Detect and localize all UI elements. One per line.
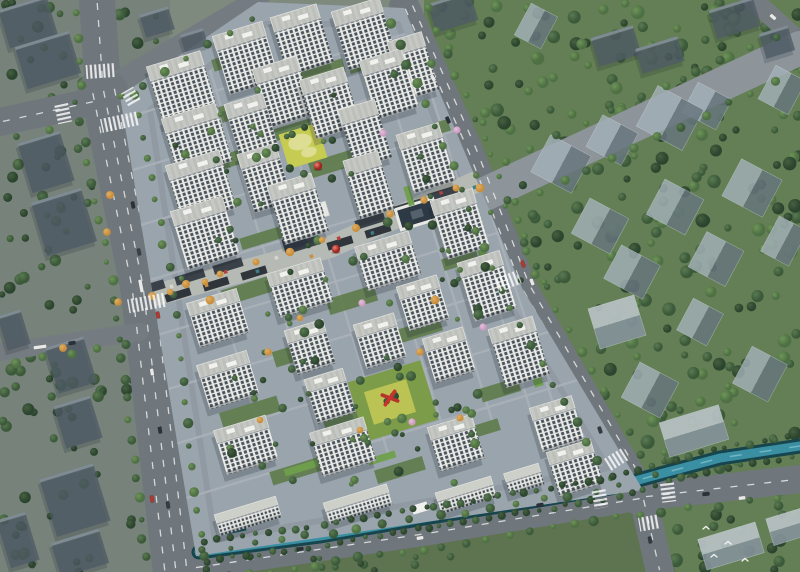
tree: [486, 504, 495, 513]
tree: [108, 275, 118, 285]
tree: [471, 499, 476, 504]
tree: [203, 40, 212, 49]
tree: [771, 292, 780, 301]
tree: [278, 404, 287, 413]
tree: [106, 191, 114, 199]
tree: [323, 277, 329, 283]
tree: [440, 277, 445, 282]
tree: [483, 493, 491, 501]
tree: [684, 503, 692, 511]
tree: [653, 342, 662, 351]
tree: [422, 175, 430, 183]
tree: [747, 302, 757, 312]
tree: [132, 37, 144, 49]
tree: [186, 443, 192, 449]
tree: [433, 27, 441, 35]
tree: [227, 534, 234, 541]
tree: [502, 158, 510, 166]
tree: [551, 506, 557, 512]
tree: [22, 234, 29, 241]
tree: [217, 271, 224, 278]
tree: [428, 220, 437, 229]
tree: [457, 267, 463, 273]
tree: [692, 473, 698, 479]
tree: [232, 375, 238, 381]
tree: [536, 189, 544, 197]
tree: [299, 327, 309, 337]
tree: [719, 134, 727, 142]
tree: [233, 198, 242, 207]
tree: [300, 359, 306, 365]
tree: [494, 492, 501, 499]
tree: [286, 164, 294, 172]
tree: [400, 528, 407, 535]
tree: [250, 124, 256, 130]
tree: [288, 365, 296, 373]
tree: [135, 492, 145, 502]
tree: [679, 253, 689, 263]
tree: [631, 5, 645, 19]
tree: [252, 153, 261, 162]
tree: [631, 153, 638, 160]
tree: [702, 352, 712, 362]
tree: [479, 323, 486, 330]
tree: [396, 40, 406, 50]
tree: [725, 99, 732, 106]
tree: [747, 44, 754, 51]
tree: [272, 144, 280, 152]
tree: [201, 539, 208, 546]
tree: [390, 70, 398, 78]
tree: [550, 382, 556, 388]
tree: [680, 76, 687, 83]
tree: [563, 502, 568, 507]
tree: [314, 319, 324, 329]
tree: [38, 353, 47, 362]
tree: [13, 133, 20, 140]
tree: [418, 154, 424, 160]
tree: [325, 543, 331, 549]
tree: [384, 355, 390, 361]
tree: [337, 539, 343, 545]
tree: [530, 120, 540, 130]
tree: [783, 157, 797, 171]
tree: [360, 514, 368, 522]
tree: [158, 240, 167, 249]
tree: [608, 154, 617, 163]
tree: [363, 535, 368, 540]
tree: [360, 253, 368, 261]
tree: [473, 389, 483, 399]
tree: [673, 457, 681, 465]
tree: [790, 455, 795, 460]
tree: [72, 100, 77, 105]
tree: [213, 535, 221, 543]
tree: [468, 431, 475, 438]
tree: [48, 392, 56, 400]
tree: [198, 531, 205, 538]
tree: [600, 387, 608, 395]
tree: [257, 553, 262, 558]
tree: [93, 391, 104, 402]
tree: [537, 76, 549, 88]
tree: [124, 416, 131, 423]
tree: [703, 469, 711, 477]
tree: [701, 36, 709, 44]
tree: [480, 108, 491, 119]
tree: [653, 483, 658, 488]
tree: [4, 282, 16, 294]
tree: [306, 546, 312, 552]
tree: [139, 517, 145, 523]
tree: [696, 214, 710, 228]
tree: [618, 193, 626, 201]
tree: [558, 271, 571, 284]
tree: [749, 459, 757, 467]
tree: [215, 237, 222, 244]
tree: [473, 172, 479, 178]
tree: [416, 348, 424, 356]
tree: [566, 327, 572, 333]
tree: [472, 516, 480, 524]
tree: [348, 171, 354, 177]
tree: [672, 524, 683, 535]
tree: [610, 82, 622, 94]
tree: [615, 412, 621, 418]
aerial-masterplan-render: [0, 0, 800, 572]
tree: [561, 176, 570, 185]
tree: [173, 142, 179, 148]
tree: [350, 537, 355, 542]
tree: [629, 144, 638, 153]
tree: [534, 488, 540, 494]
crosswalk: [86, 63, 117, 79]
tree: [402, 255, 410, 263]
tree: [456, 277, 461, 282]
tree: [265, 529, 272, 536]
tree: [638, 22, 648, 32]
tree: [123, 393, 131, 401]
tree: [396, 373, 404, 381]
tree: [258, 462, 266, 470]
tree: [457, 415, 464, 422]
tree: [528, 210, 538, 220]
tree: [425, 504, 430, 509]
tree: [530, 236, 541, 247]
tree: [568, 11, 581, 24]
tree: [463, 92, 469, 98]
tree: [774, 267, 784, 277]
tree: [550, 524, 556, 530]
tree: [116, 353, 126, 363]
tree: [623, 175, 630, 182]
tree: [67, 350, 76, 359]
tree: [104, 260, 109, 265]
tree: [11, 382, 20, 391]
tree: [228, 546, 233, 551]
tree: [394, 363, 402, 371]
tree: [588, 367, 596, 375]
tree: [714, 502, 724, 512]
tree: [77, 58, 84, 65]
tree: [233, 238, 239, 244]
tree: [663, 324, 671, 332]
tree: [408, 418, 415, 425]
tree: [515, 217, 522, 224]
tree: [722, 446, 727, 451]
tree: [633, 353, 641, 361]
tree: [74, 34, 83, 43]
tree: [592, 163, 604, 175]
tree: [547, 106, 555, 114]
tree: [656, 152, 669, 165]
tree: [431, 296, 440, 305]
tree: [390, 529, 397, 536]
tree: [511, 198, 519, 206]
tree: [596, 476, 604, 484]
tree: [45, 126, 53, 134]
tree: [506, 531, 514, 539]
tree: [462, 406, 470, 414]
tree: [400, 508, 406, 514]
tree: [526, 341, 535, 350]
tree: [687, 367, 699, 379]
tree: [651, 163, 661, 173]
tree: [331, 92, 336, 97]
tree: [544, 284, 550, 290]
tree: [384, 418, 392, 426]
tree: [637, 93, 646, 102]
tree: [181, 150, 190, 159]
tree: [304, 525, 310, 531]
tree: [321, 521, 329, 529]
tree: [300, 531, 309, 540]
tree: [559, 481, 566, 488]
tree: [188, 463, 195, 470]
tree: [592, 456, 602, 466]
tree: [391, 429, 398, 436]
tree: [567, 110, 576, 119]
tree: [420, 196, 427, 203]
tree: [488, 152, 493, 157]
tree: [379, 129, 386, 136]
tree: [126, 519, 135, 528]
tree: [537, 508, 542, 513]
tree: [45, 300, 55, 310]
car: [738, 496, 745, 500]
tree: [479, 119, 486, 126]
tree: [301, 124, 308, 131]
tree: [358, 299, 365, 306]
tree: [437, 523, 442, 528]
tree: [401, 60, 411, 70]
tree: [257, 417, 264, 424]
tree: [132, 474, 140, 482]
tree: [653, 132, 662, 141]
car: [702, 492, 709, 496]
tree: [785, 433, 791, 439]
tree: [470, 439, 480, 449]
tree: [18, 272, 30, 284]
tree: [252, 540, 258, 546]
tree: [483, 136, 488, 141]
tree: [377, 533, 383, 539]
tree: [598, 4, 608, 14]
tree: [386, 511, 392, 517]
tree: [415, 446, 421, 452]
tree: [623, 470, 629, 476]
tree: [772, 437, 778, 443]
tree: [677, 473, 685, 481]
tree: [57, 10, 64, 17]
tree: [207, 127, 215, 135]
tree: [701, 3, 708, 10]
tree: [762, 438, 768, 444]
tree: [94, 216, 102, 224]
tree: [446, 520, 453, 527]
tree: [253, 531, 258, 536]
tree: [662, 303, 675, 316]
tree: [522, 247, 530, 255]
tree: [183, 418, 193, 428]
tree: [137, 534, 146, 543]
tree: [352, 524, 362, 534]
tree: [230, 554, 235, 559]
tree: [497, 116, 511, 130]
tree: [400, 432, 405, 437]
tree: [511, 509, 518, 516]
tree: [253, 259, 260, 266]
tree: [278, 527, 286, 535]
tree: [432, 124, 438, 130]
tree: [484, 80, 493, 89]
tree: [774, 556, 785, 567]
tree: [673, 25, 681, 33]
tree: [763, 458, 770, 465]
tree: [609, 473, 617, 481]
tree: [86, 179, 96, 189]
tree: [647, 239, 655, 247]
tree: [349, 481, 354, 486]
tree: [412, 78, 422, 88]
tree: [465, 224, 472, 231]
tree: [399, 550, 406, 557]
tree: [329, 529, 338, 538]
tree: [634, 466, 642, 474]
tree: [725, 362, 735, 372]
tree: [437, 543, 445, 551]
red-sphere-sculpture: [314, 162, 322, 170]
tree: [478, 32, 486, 40]
tree: [178, 356, 183, 361]
tree: [38, 263, 45, 270]
tree: [258, 201, 263, 206]
tree: [459, 187, 465, 193]
tree: [121, 375, 131, 385]
tree: [773, 161, 781, 169]
tree: [616, 494, 623, 501]
tree: [365, 440, 371, 446]
tree: [462, 539, 470, 547]
tree: [269, 548, 276, 555]
tree: [77, 81, 86, 90]
tree: [727, 515, 735, 523]
tree: [436, 510, 446, 520]
tree: [563, 492, 573, 502]
tree: [173, 311, 181, 319]
tree: [433, 412, 439, 418]
tree: [433, 399, 439, 405]
tree: [306, 243, 312, 249]
tree: [723, 348, 731, 356]
tree: [705, 286, 716, 297]
tree: [102, 239, 109, 246]
tree: [720, 390, 733, 403]
tree: [510, 490, 516, 496]
tree: [198, 546, 205, 553]
tree: [357, 427, 364, 434]
tree: [698, 449, 704, 455]
tree: [626, 429, 633, 436]
tree: [74, 144, 83, 153]
tree: [732, 126, 739, 133]
tree: [685, 453, 693, 461]
tree: [481, 262, 491, 272]
tree: [573, 417, 583, 427]
tree: [747, 91, 754, 98]
tree: [430, 503, 438, 511]
tree: [461, 510, 469, 518]
tree: [707, 175, 720, 188]
tree: [724, 224, 731, 231]
tree: [298, 397, 304, 403]
tree: [524, 87, 533, 96]
tree: [731, 419, 738, 426]
tree: [629, 489, 636, 496]
tree: [127, 436, 136, 445]
tree: [746, 441, 754, 449]
tree: [496, 174, 502, 180]
tree: [3, 193, 12, 202]
tree: [507, 305, 513, 311]
tree: [573, 481, 578, 486]
tree: [376, 551, 383, 558]
tree: [285, 314, 293, 322]
tree: [696, 129, 708, 141]
tree: [548, 486, 554, 492]
tree: [321, 139, 327, 145]
tree: [319, 237, 325, 243]
tree: [520, 489, 528, 497]
tree: [577, 347, 587, 357]
tree: [93, 344, 101, 352]
tree: [443, 49, 452, 58]
tree: [472, 117, 478, 123]
tree: [281, 549, 288, 556]
tree: [213, 156, 220, 163]
tree: [491, 0, 503, 12]
tree: [179, 276, 184, 281]
tree: [571, 202, 583, 214]
tree: [152, 196, 158, 202]
tree: [19, 492, 31, 504]
tree: [698, 169, 705, 176]
tree: [182, 399, 188, 405]
tree: [300, 170, 308, 178]
tree: [571, 519, 580, 528]
tree: [311, 356, 320, 365]
tree: [90, 448, 98, 456]
